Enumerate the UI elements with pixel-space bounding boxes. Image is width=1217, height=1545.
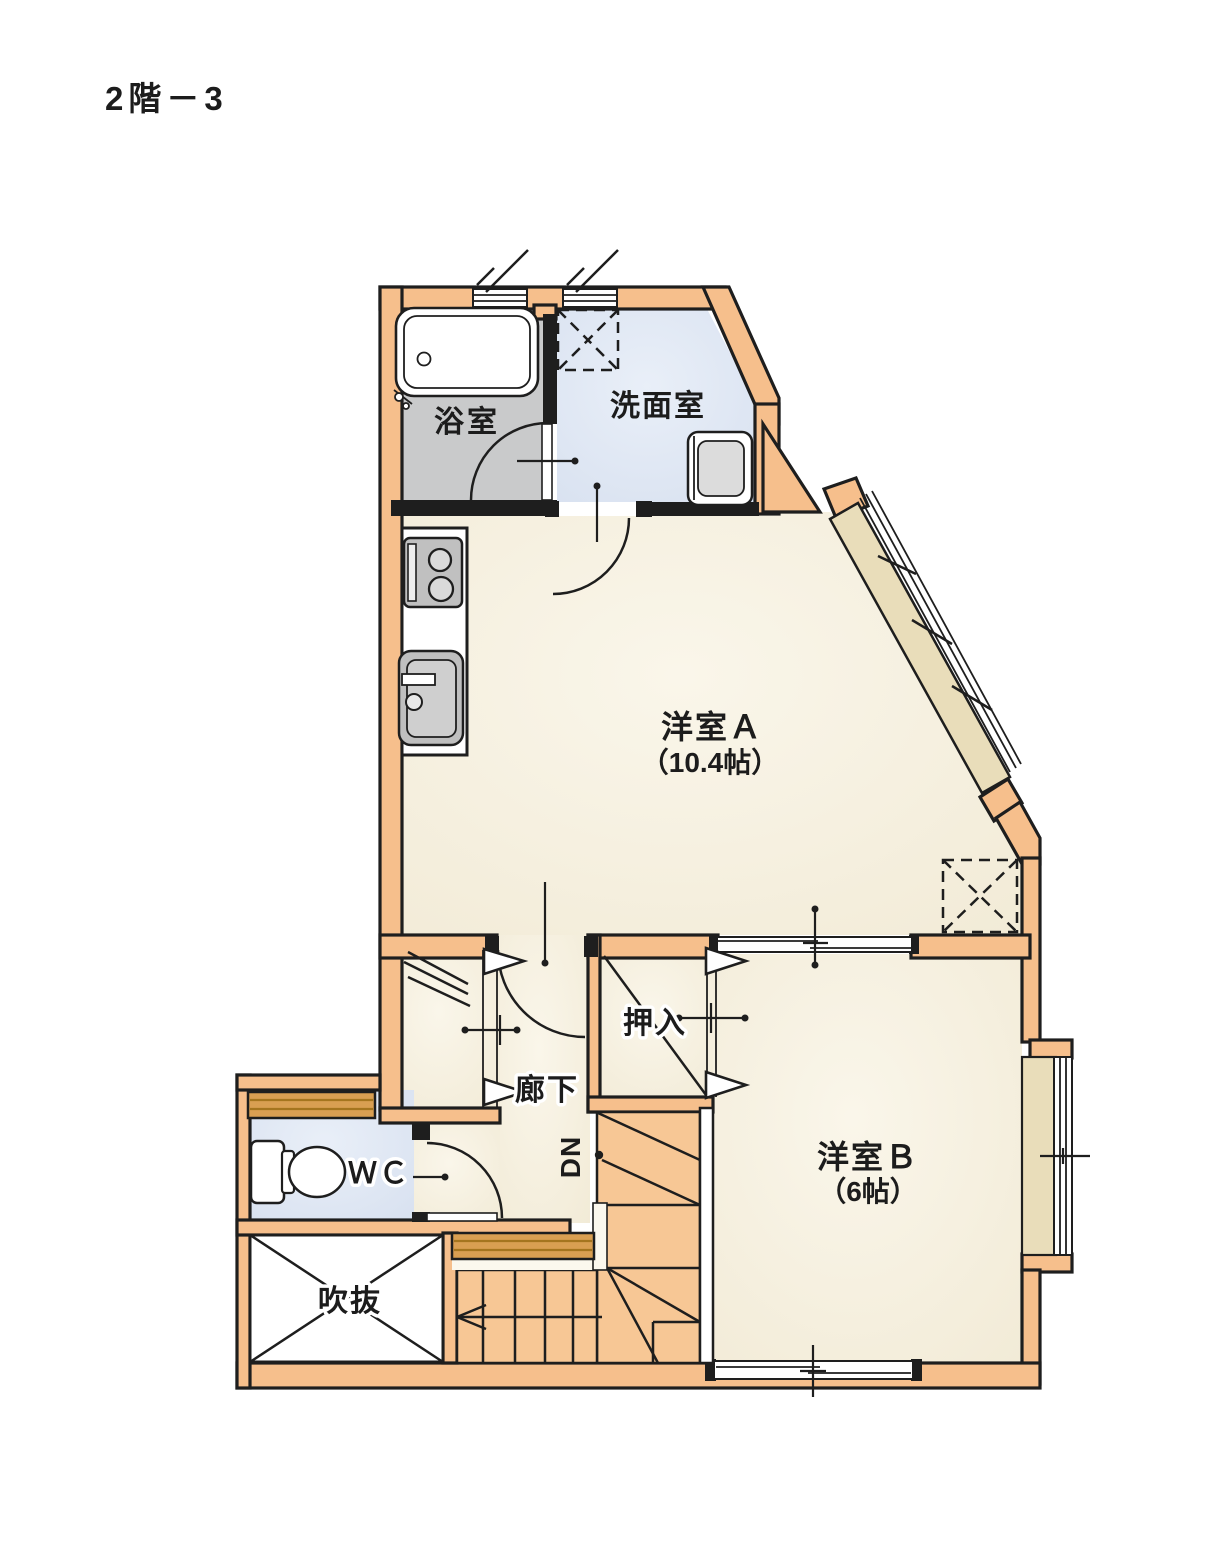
stair-start-dot xyxy=(595,1151,603,1159)
wc-shelf xyxy=(248,1092,375,1118)
wall-closet-bottom xyxy=(380,1108,500,1123)
label-oshiire: 押入 xyxy=(623,1007,687,1040)
jamb xyxy=(636,501,652,517)
floor-plan-page: 2階－3 浴室 洗面室 洋室Ａ （10.4帖） 押入 廊下 ＷＣ 吹抜 洋室Ｂ … xyxy=(0,0,1217,1545)
vanity-sink xyxy=(688,432,752,505)
page-title: 2階－3 xyxy=(105,80,228,117)
kitchen-counter xyxy=(399,528,467,755)
wall-oshiire-top xyxy=(588,935,718,958)
bay-b-jamb-top xyxy=(1030,1040,1072,1058)
floor-plan-drawing: 2階－3 浴室 洗面室 洋室Ａ （10.4帖） 押入 廊下 ＷＣ 吹抜 洋室Ｂ … xyxy=(0,0,1217,1545)
label-void: 吹抜 xyxy=(318,1285,382,1318)
label-wc: ＷＣ xyxy=(348,1158,410,1190)
label-bath: 浴室 xyxy=(434,405,500,439)
label-room-b-size: （6帖） xyxy=(818,1175,918,1207)
label-room-a: 洋室Ａ xyxy=(661,709,763,745)
stair-handrail xyxy=(452,1233,594,1259)
jamb xyxy=(412,1122,430,1140)
bath-bottom-wall xyxy=(391,500,557,516)
top-window-1 xyxy=(473,250,528,307)
bathtub xyxy=(394,308,538,409)
label-room-a-size: （10.4帖） xyxy=(641,746,780,778)
label-washroom: 洗面室 xyxy=(610,389,706,423)
jamb xyxy=(584,936,598,957)
bath-washroom-divider xyxy=(543,314,557,424)
stove xyxy=(404,538,462,607)
stair-column xyxy=(597,1112,700,1363)
wall-mid-left xyxy=(380,935,497,958)
kitchen-sink xyxy=(399,651,463,745)
label-hallway: 廊下 xyxy=(515,1073,579,1107)
wall-brace-triangle xyxy=(763,424,820,512)
wall-mid-right xyxy=(911,935,1030,958)
label-room-b: 洋室Ｂ xyxy=(817,1139,919,1175)
wall-oshiire-left xyxy=(588,935,600,1112)
wall-oshiire-bottom xyxy=(588,1097,713,1112)
label-stairs-dn: DN xyxy=(555,1136,586,1178)
jamb xyxy=(545,501,559,517)
stair-wall-right xyxy=(700,1108,713,1363)
top-window-2 xyxy=(563,250,618,307)
wall-wc-top xyxy=(237,1075,380,1090)
